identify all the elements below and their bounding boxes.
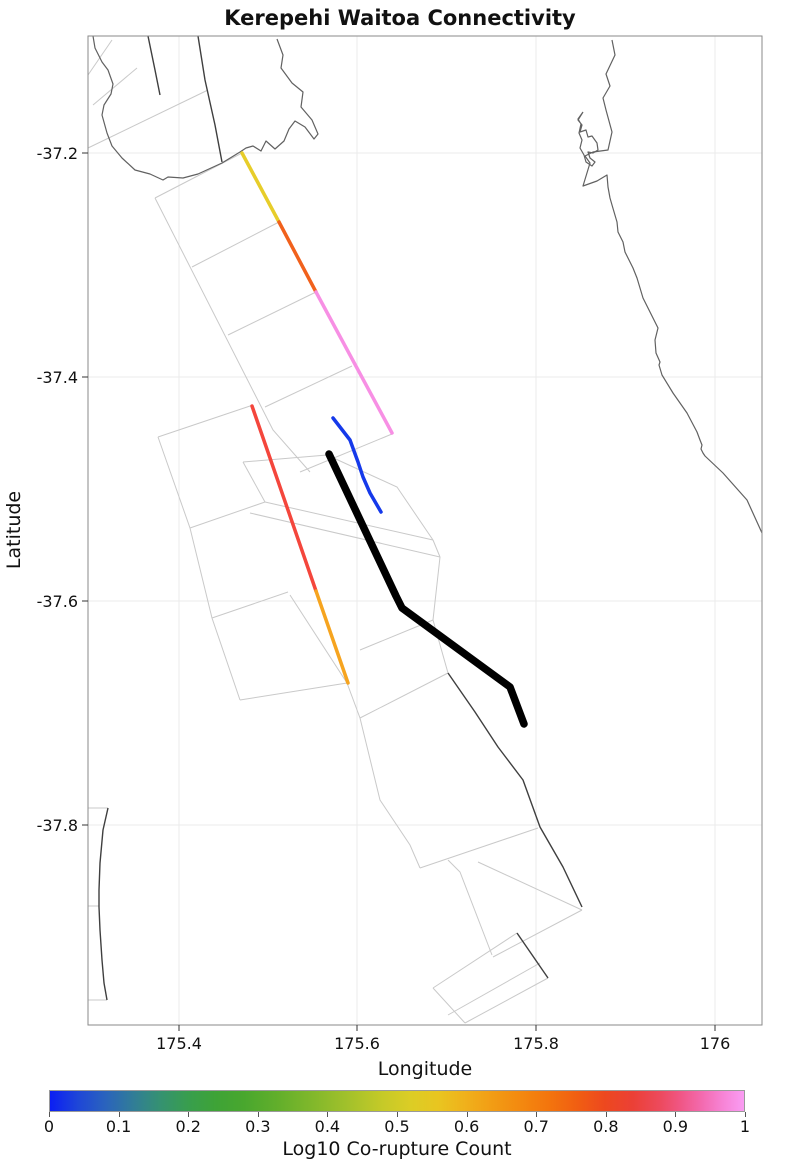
gridlines-layer xyxy=(88,36,762,1025)
chart-title: Kerepehi Waitoa Connectivity xyxy=(224,6,576,30)
rupture-segment-orange-upper xyxy=(279,222,316,292)
fault-polygon-edge xyxy=(88,90,208,148)
x-tick-label: 175.4 xyxy=(156,1034,202,1053)
y-tick-label: -37.4 xyxy=(37,368,78,387)
fault-polygon-edge xyxy=(265,366,352,407)
fault-polygon-edge xyxy=(212,592,288,618)
fault-polygon-edge xyxy=(228,292,316,335)
colorbar-tick-label: 0.8 xyxy=(574,1117,638,1136)
y-tick-label: -37.2 xyxy=(37,144,78,163)
fault-polygon-edge xyxy=(360,718,420,868)
colorbar-tick-label: 0.6 xyxy=(435,1117,499,1136)
plot-frame xyxy=(88,36,762,1025)
fault-polygon-edge xyxy=(158,437,240,700)
fault-polygon-edge xyxy=(433,988,465,1023)
fault-polygon-edge xyxy=(433,540,440,557)
rupture-segment-yellow xyxy=(242,153,279,222)
colorbar-tick-label: 1 xyxy=(713,1117,777,1136)
coastline xyxy=(578,112,598,166)
y-tick-label: -37.6 xyxy=(37,592,78,611)
axis-ticks-layer: 175.4175.6175.8176-37.2-37.4-37.6-37.8 xyxy=(37,144,731,1053)
rupture-segment-orange-lower xyxy=(316,591,348,683)
y-axis-label: Latitude xyxy=(3,491,25,569)
fault-polygon-edge xyxy=(327,455,433,540)
coastline xyxy=(93,36,318,180)
fault-polygon-edge xyxy=(240,683,347,700)
fault-trace-line xyxy=(198,36,222,162)
x-tick-label: 176 xyxy=(700,1034,731,1053)
colorbar-label: Log10 Co-rupture Count xyxy=(49,1138,745,1160)
fault-polygon-edge xyxy=(243,462,265,502)
map-plot: 175.4175.6175.8176-37.2-37.4-37.6-37.8 K… xyxy=(0,0,800,1171)
x-tick-label: 175.8 xyxy=(513,1034,559,1053)
basemap-layer xyxy=(88,36,762,1023)
colorbar-tick-label: 0.9 xyxy=(643,1117,707,1136)
fault-polygon-edge xyxy=(192,222,279,267)
colorbar: 00.10.20.30.40.50.60.70.80.91 Log10 Co-r… xyxy=(0,1086,800,1171)
x-axis-label: Longitude xyxy=(378,1058,473,1080)
fault-polygon-edge xyxy=(300,434,392,472)
fault-trace-line xyxy=(517,933,548,978)
rupture-segment-pink xyxy=(316,292,392,433)
fault-traces-layer xyxy=(242,153,524,724)
fault-polygon-edge xyxy=(493,910,582,957)
colorbar-tick-label: 0.7 xyxy=(504,1117,568,1136)
fault-trace-line xyxy=(148,36,160,95)
y-tick-label: -37.8 xyxy=(37,816,78,835)
colorbar-tick-label: 0.4 xyxy=(295,1117,359,1136)
colorbar-tick-label: 0.1 xyxy=(87,1117,151,1136)
fault-polygon-edge xyxy=(360,673,448,718)
fault-polygon-edge xyxy=(158,405,253,437)
fault-polygon-edge xyxy=(243,455,327,462)
colorbar-tick-label: 0.2 xyxy=(156,1117,220,1136)
fault-polygon-edge xyxy=(290,595,347,683)
fault-polygon-edge xyxy=(448,860,492,955)
colorbar-tick-label: 0 xyxy=(17,1117,81,1136)
coastline xyxy=(583,40,762,533)
figure-canvas: 175.4175.6175.8176-37.2-37.4-37.6-37.8 K… xyxy=(0,0,800,1171)
fault-polygon-edge xyxy=(347,683,360,718)
fault-polygon-edge xyxy=(155,153,242,198)
fault-polygon-edge xyxy=(478,862,582,910)
fault-polygon-edge xyxy=(433,933,517,988)
rupture-segment-red xyxy=(252,406,316,591)
colorbar-tick-label: 0.3 xyxy=(226,1117,290,1136)
fault-trace-line xyxy=(99,808,108,1000)
colorbar-tick-label: 0.5 xyxy=(365,1117,429,1136)
fault-polygon-edge xyxy=(190,502,265,528)
colorbar-gradient xyxy=(49,1090,745,1112)
fault-polygon-edge xyxy=(93,68,137,105)
fault-polygon-edge xyxy=(433,557,448,673)
x-tick-label: 175.6 xyxy=(334,1034,380,1053)
